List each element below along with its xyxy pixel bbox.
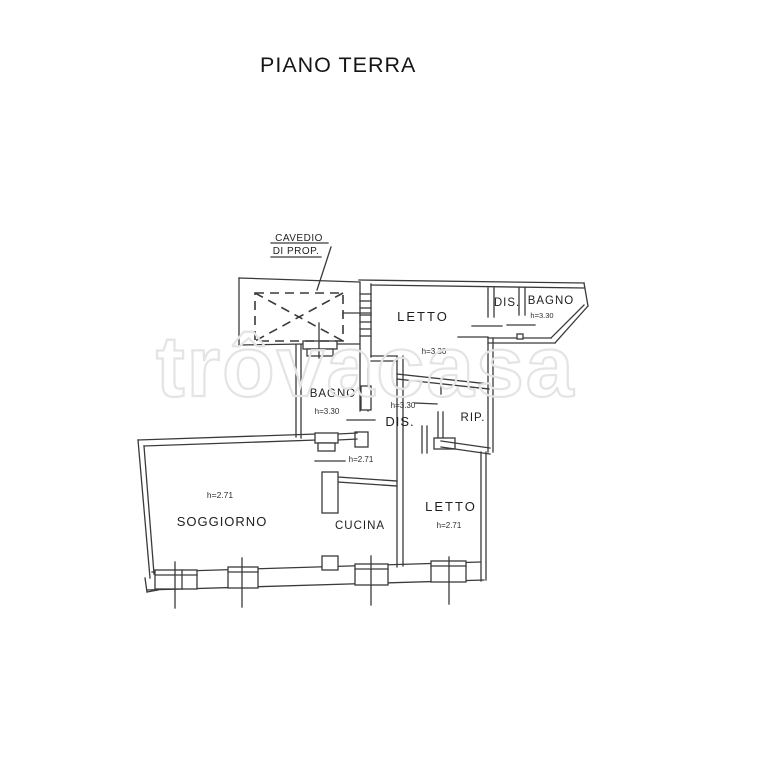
door-leaf — [322, 472, 338, 513]
room-label-dis-top: DIS. — [494, 297, 520, 309]
window-2 — [228, 558, 258, 607]
room-label-bagno-top: BAGNO — [528, 295, 575, 307]
cavedio-label-line2: DI PROP. — [273, 246, 320, 257]
room-label-rip: RIP. — [461, 412, 486, 424]
kitchen-threshold — [322, 556, 338, 570]
window-4 — [431, 557, 466, 604]
height-label-dis-mid: h=3.30 — [391, 401, 416, 410]
floorplan-drawing: CAVEDIO DI PROP. LETTO h=3.30 DIS. BAGNO… — [0, 0, 761, 768]
room-label-dis-mid: DIS. — [385, 414, 414, 429]
height-label-bagno-top: h=3.30 — [530, 311, 553, 320]
kitchen-wall — [322, 472, 397, 513]
height-label-letto-top: h=3.30 — [422, 347, 447, 356]
room-label-bagno-mid: BAGNO — [310, 388, 357, 400]
room-label-soggiorno: SOGGIORNO — [177, 514, 268, 529]
height-label-corridor: h=2.71 — [349, 455, 374, 464]
window-3 — [355, 556, 388, 605]
height-label-letto-bottom: h=2.71 — [437, 521, 462, 530]
room-label-letto-bottom: LETTO — [425, 499, 477, 514]
room-label-letto-top: LETTO — [397, 309, 449, 324]
cavedio-enclosure — [239, 278, 359, 358]
height-label-soggiorno: h=2.71 — [207, 490, 234, 500]
room-labels: CAVEDIO DI PROP. LETTO h=3.30 DIS. BAGNO… — [177, 233, 575, 532]
cavedio-dashed-box — [255, 293, 371, 341]
window-1 — [155, 562, 197, 608]
hatched-wall — [355, 282, 371, 447]
cavedio-label-line1: CAVEDIO — [275, 233, 323, 244]
floorplan-page: PIANO TERRA — [0, 0, 761, 768]
interior-walls — [371, 356, 489, 567]
height-label-bagno-mid: h=3.30 — [315, 407, 340, 416]
room-label-cucina: CUCINA — [335, 520, 385, 532]
